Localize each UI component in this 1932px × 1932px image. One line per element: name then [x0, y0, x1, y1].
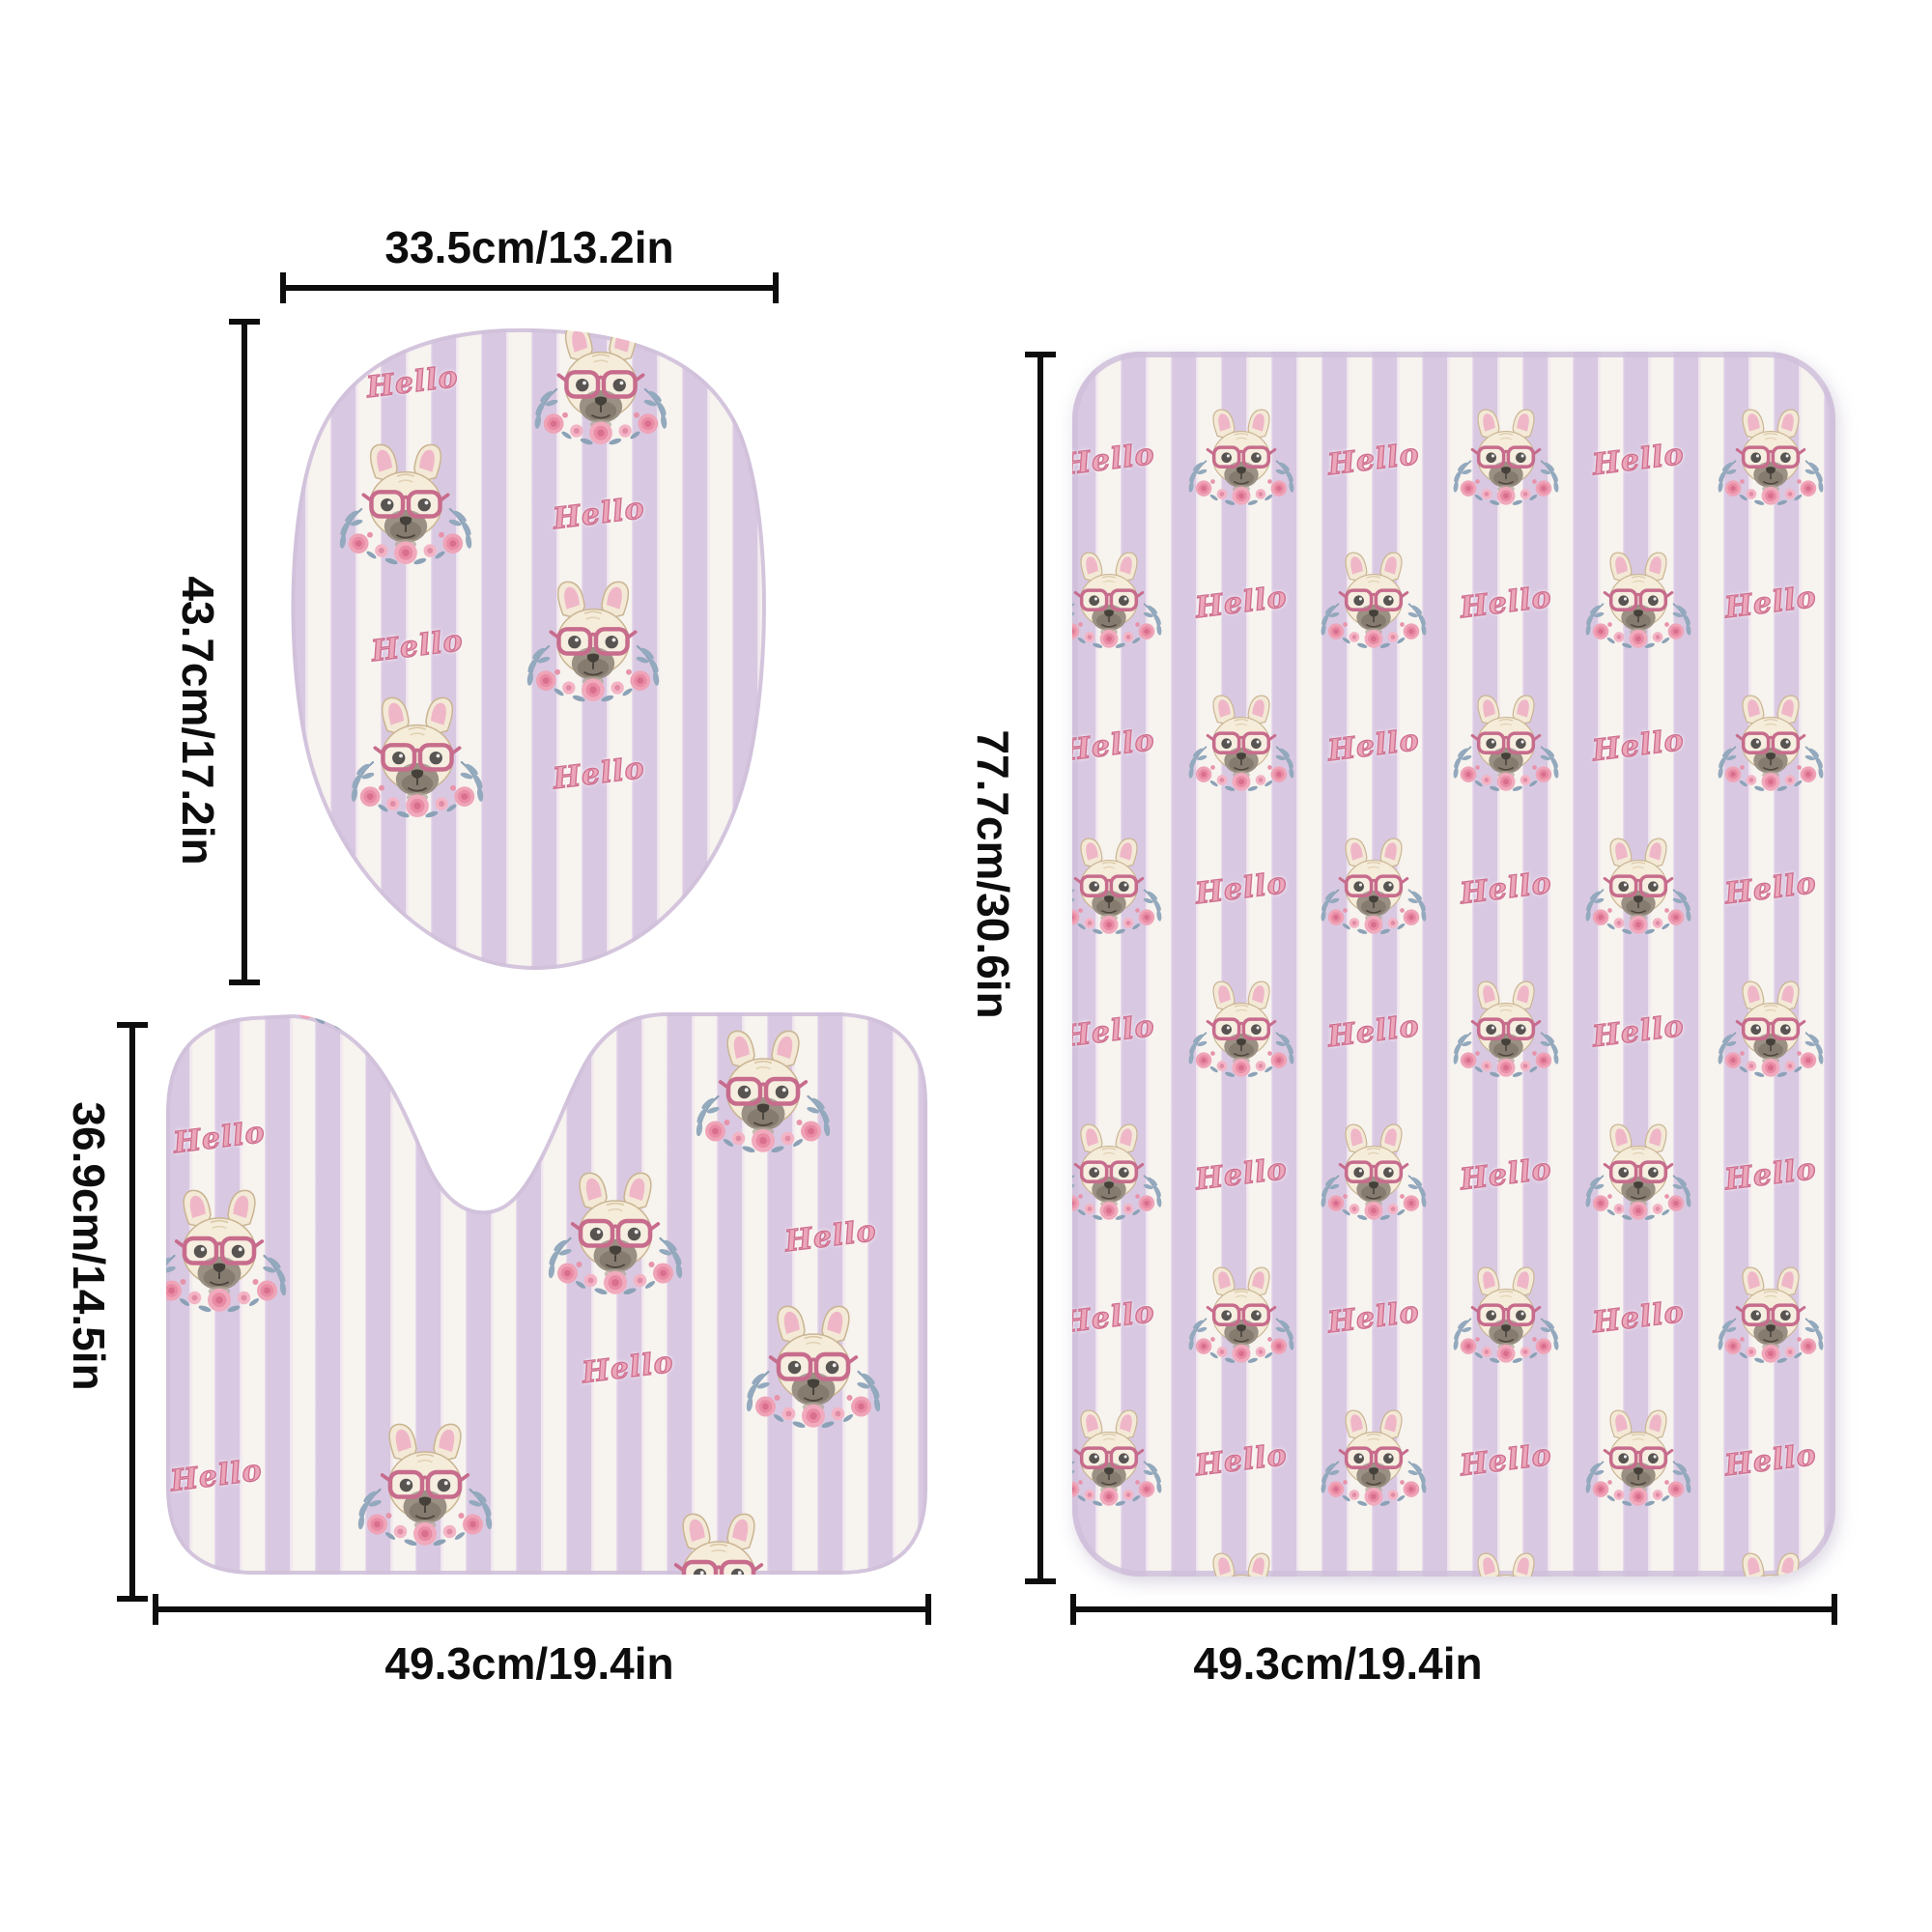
frenchie-dog-art [522, 581, 665, 709]
hello-script-text: Hello [552, 492, 647, 536]
dim-label-bath-mat-width: 49.3cm/19.4in [1193, 1637, 1482, 1690]
frenchie-dog-art [1072, 1123, 1166, 1226]
frenchie-dog-art [1317, 552, 1431, 654]
frenchie-dog-art [334, 443, 477, 572]
hello-script-text: Hello [552, 752, 647, 796]
hello-script-text: Hello [1723, 867, 1819, 911]
hello-script-text: Hello [1723, 1438, 1819, 1483]
hello-script-text: Hello [1072, 1295, 1156, 1340]
frenchie-dog-art [529, 325, 672, 453]
hello-script-text: Hello [1591, 724, 1687, 768]
frenchie-dog-art [1714, 980, 1828, 1083]
frenchie-dog-art [1449, 1552, 1563, 1577]
hello-script-text: Hello [1723, 1152, 1819, 1197]
frenchie-dog-art [1714, 409, 1828, 511]
dim-label-lid-width: 33.5cm/13.2in [384, 221, 673, 273]
hello-script-text: Hello [1459, 1438, 1554, 1483]
frenchie-dog-art [691, 1030, 836, 1160]
frenchie-dog-art [1714, 695, 1828, 797]
hello-script-text: Hello [783, 1214, 879, 1259]
frenchie-dog-art [1184, 1266, 1298, 1369]
dim-label-lid-height: 43.7cm/17.2in [172, 576, 224, 865]
frenchie-dog-art [1317, 1123, 1431, 1226]
hello-script-text: Hello [172, 1116, 268, 1160]
dim-label-contour-height: 36.9cm/14.5in [63, 1101, 115, 1390]
frenchie-dog-art [1581, 552, 1695, 654]
hello-script-text: Hello [1194, 1152, 1290, 1197]
frenchie-dog-art [1317, 838, 1431, 940]
dim-line-contour-height [129, 1022, 135, 1602]
dim-line-contour-width [153, 1606, 931, 1612]
frenchie-dog-art [543, 1172, 688, 1302]
hello-script-text: Hello [1459, 867, 1554, 911]
hello-script-text: Hello [1591, 1009, 1687, 1054]
frenchie-dog-art [1449, 695, 1563, 797]
dim-line-lid-height [241, 319, 247, 985]
frenchie-dog-art [1581, 1409, 1695, 1512]
hello-script-text: Hello [1723, 581, 1819, 625]
hello-script-text: Hello [1326, 1295, 1422, 1340]
hello-script-text: Hello [1459, 1152, 1554, 1197]
frenchie-dog-art [1714, 1266, 1828, 1369]
dim-label-bath-mat-height: 77.7cm/30.6in [967, 729, 1019, 1018]
hello-script-text: Hello [1072, 438, 1156, 482]
hello-script-text: Hello [1459, 581, 1554, 625]
dim-line-bath-mat-width [1070, 1606, 1837, 1612]
frenchie-dog-art [353, 1423, 497, 1553]
frenchie-dog-art [741, 1305, 886, 1435]
hello-script-text: Hello [1194, 867, 1290, 911]
frenchie-dog-art [1449, 1266, 1563, 1369]
dim-label-contour-width: 49.3cm/19.4in [384, 1637, 673, 1690]
dim-line-bath-mat-height [1037, 352, 1043, 1584]
contour-mat: HelloHelloHelloHello [166, 1012, 927, 1577]
frenchie-dog-art [1317, 1409, 1431, 1512]
hello-script-text: Hello [1072, 1009, 1156, 1054]
hello-script-text: Hello [1591, 438, 1687, 482]
frenchie-dog-art [1184, 980, 1298, 1083]
hello-script-text: Hello [1072, 724, 1156, 768]
hello-script-text: Hello [169, 1454, 265, 1498]
frenchie-dog-art [1072, 838, 1166, 940]
frenchie-dog-art [282, 1012, 427, 1037]
frenchie-dog-art [1449, 409, 1563, 511]
hello-script-text: Hello [1591, 1295, 1687, 1340]
dim-line-lid-width [280, 285, 779, 291]
hello-script-text: Hello [1194, 581, 1290, 625]
hello-script-text: Hello [1194, 1438, 1290, 1483]
hello-script-text: Hello [370, 624, 466, 668]
frenchie-dog-art [646, 1513, 791, 1577]
hello-script-text: Hello [1326, 724, 1422, 768]
frenchie-dog-art [1184, 695, 1298, 797]
hello-script-text: Hello [1326, 438, 1422, 482]
frenchie-dog-art [1184, 1552, 1298, 1577]
frenchie-dog-art [1184, 409, 1298, 511]
frenchie-dog-art [1581, 838, 1695, 940]
hello-script-text: Hello [365, 360, 461, 405]
hello-script-text: Hello [1326, 1009, 1422, 1054]
toilet-lid-cover: HelloHelloHelloHello [282, 325, 781, 972]
bath-mat: HelloHelloHelloHelloHelloHelloHelloHello… [1072, 352, 1835, 1577]
frenchie-dog-art [166, 1189, 292, 1320]
frenchie-dog-art [1072, 1409, 1166, 1512]
frenchie-dog-art [1449, 980, 1563, 1083]
frenchie-dog-art [1581, 1123, 1695, 1226]
hello-script-text: Hello [581, 1346, 676, 1390]
frenchie-dog-art [1714, 1552, 1828, 1577]
frenchie-dog-art [1072, 552, 1166, 654]
frenchie-dog-art [346, 696, 489, 825]
product-size-diagram: HelloHelloHelloHello HelloHelloHelloHell… [0, 0, 1932, 1932]
